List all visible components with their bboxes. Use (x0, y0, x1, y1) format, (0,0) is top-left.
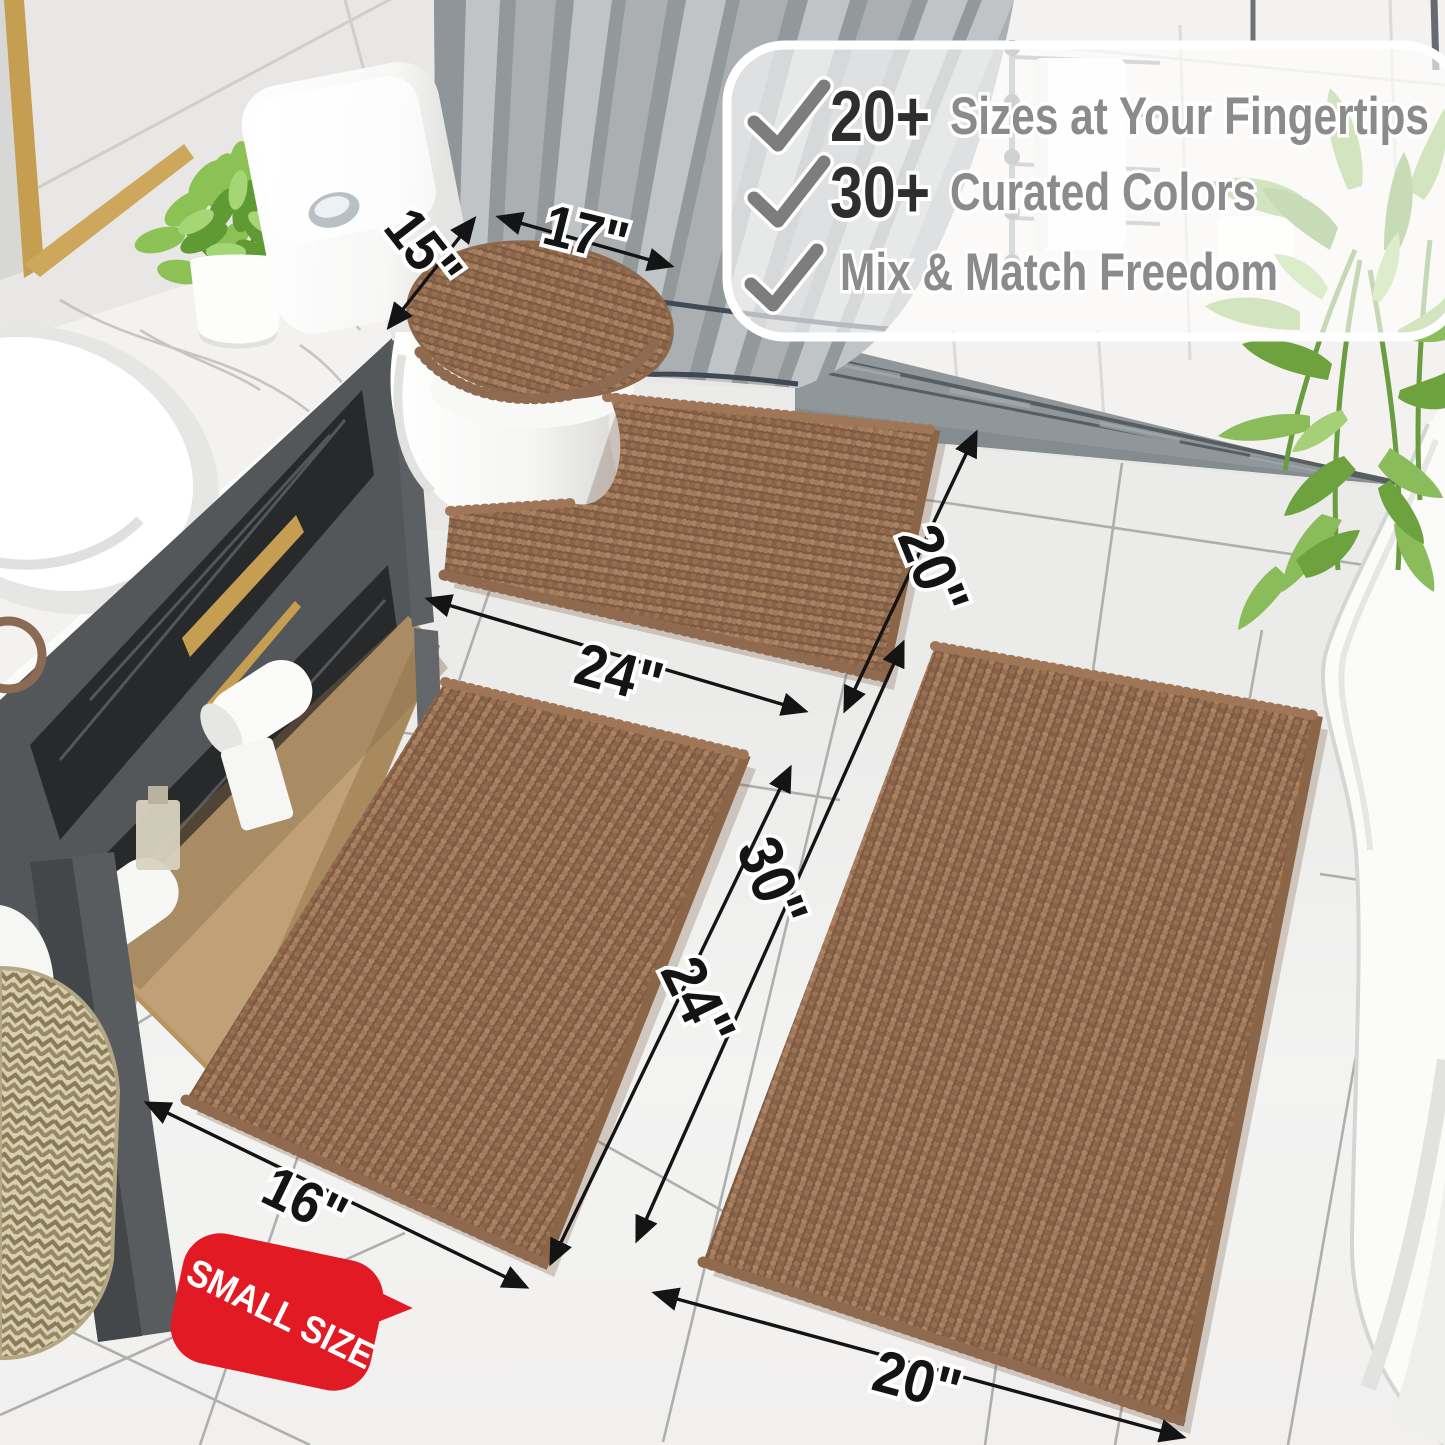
svg-text:Mix & Match Freedom: Mix & Match Freedom (840, 244, 1278, 303)
svg-text:Curated Colors: Curated Colors (950, 164, 1256, 223)
svg-text:30+: 30+ (830, 151, 930, 232)
svg-text:Sizes at Your Fingertips: Sizes at Your Fingertips (950, 88, 1429, 147)
svg-text:20+: 20+ (830, 75, 930, 156)
